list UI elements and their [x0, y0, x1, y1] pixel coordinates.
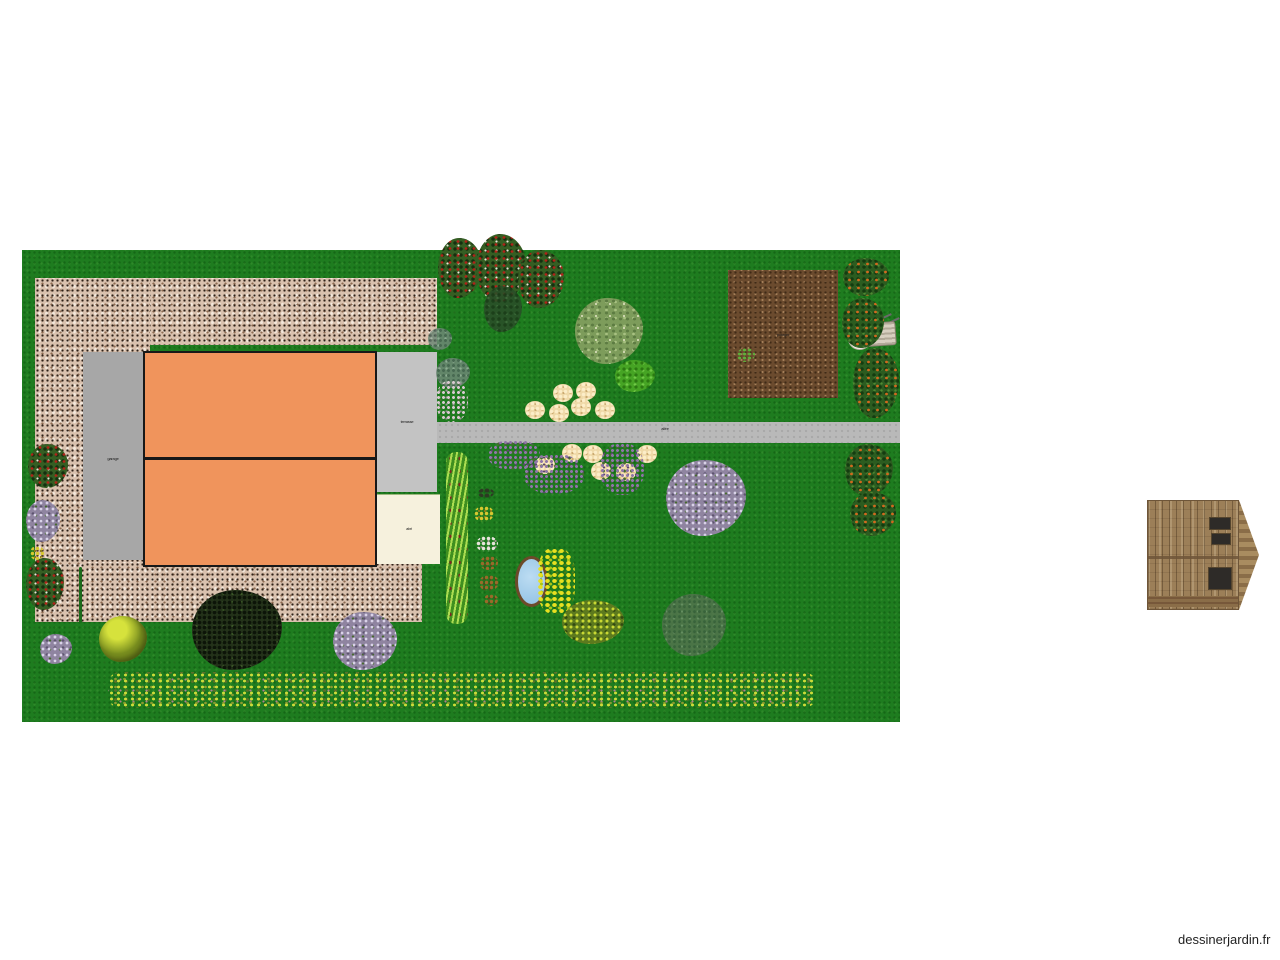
garden-plan-canvas[interactable]: garageterrasseabrialléepotager dessinerj… [0, 0, 1280, 960]
shed-window [1209, 517, 1231, 530]
terrasse-area-label: terrasse [392, 420, 422, 424]
abri-area-label: abri [394, 527, 424, 531]
shed-window [1211, 533, 1231, 545]
wood-shed-icon[interactable] [1147, 500, 1259, 612]
shed-body [1147, 500, 1239, 610]
potager-area-label: potager [768, 333, 798, 337]
labels-layer: garageterrasseabrialléepotager [0, 0, 1280, 960]
shed-gable-roof [1239, 500, 1259, 610]
shed-divider-plank [1148, 556, 1238, 559]
shed-base-plank [1148, 596, 1238, 607]
shed-window [1208, 567, 1232, 590]
garage-area-label: garage [98, 457, 128, 461]
site-watermark: dessinerjardin.fr [1178, 932, 1271, 947]
allee-path-label: allée [650, 427, 680, 431]
